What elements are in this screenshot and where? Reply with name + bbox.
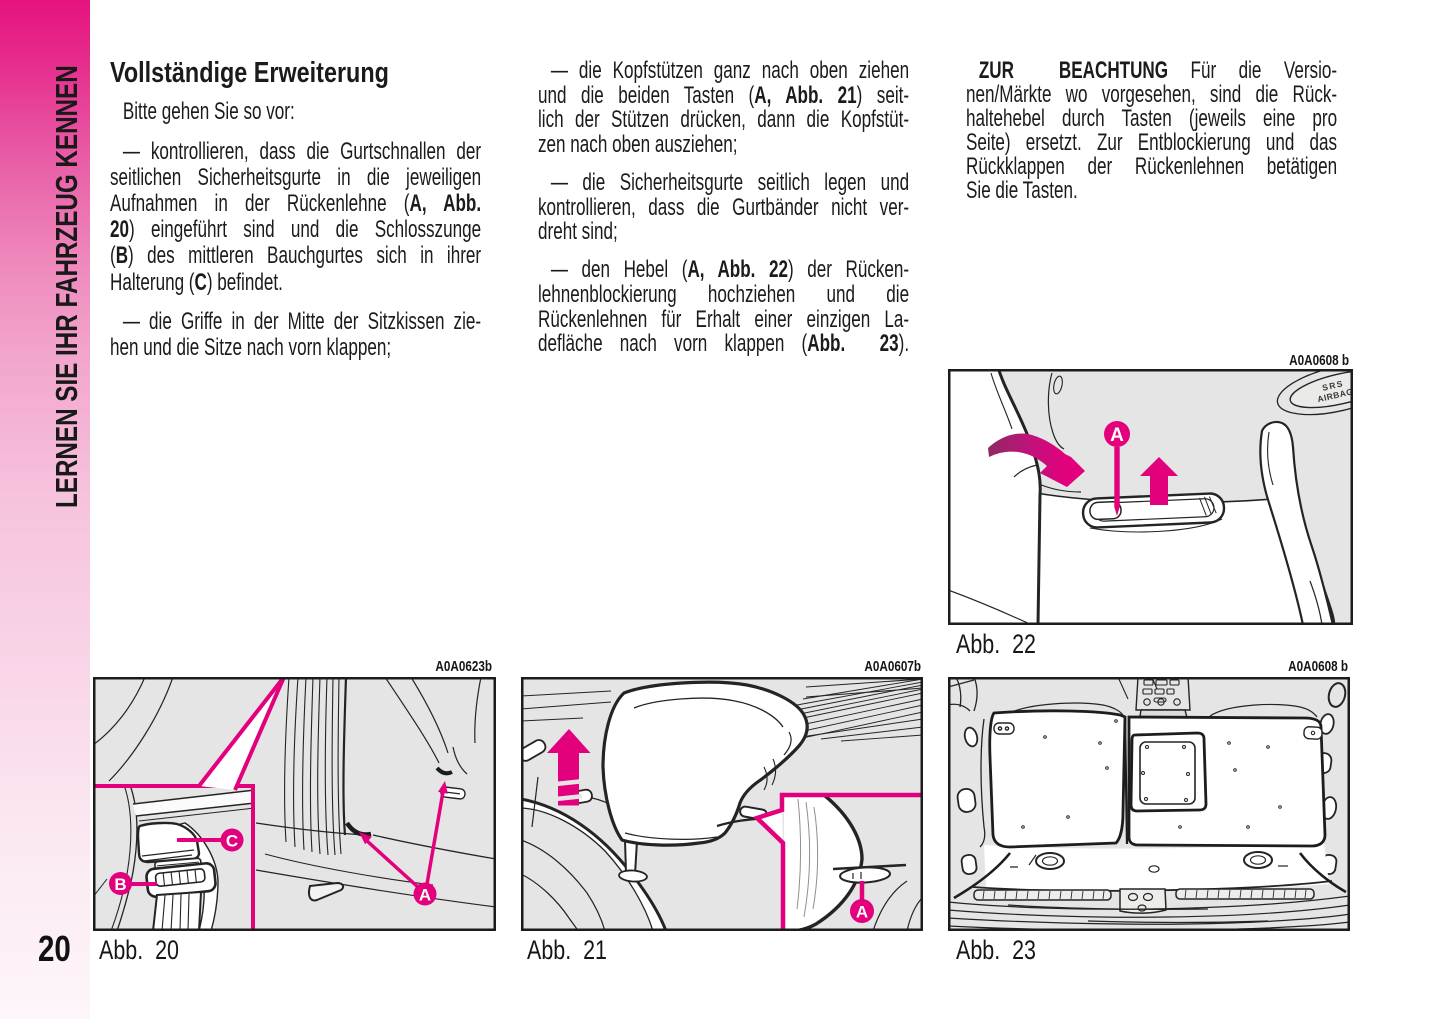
svg-text:C: C [226,832,238,851]
svg-text:A: A [856,903,868,922]
svg-text:A: A [419,886,431,905]
svg-text:B: B [114,875,126,894]
svg-text:A: A [1110,425,1124,446]
